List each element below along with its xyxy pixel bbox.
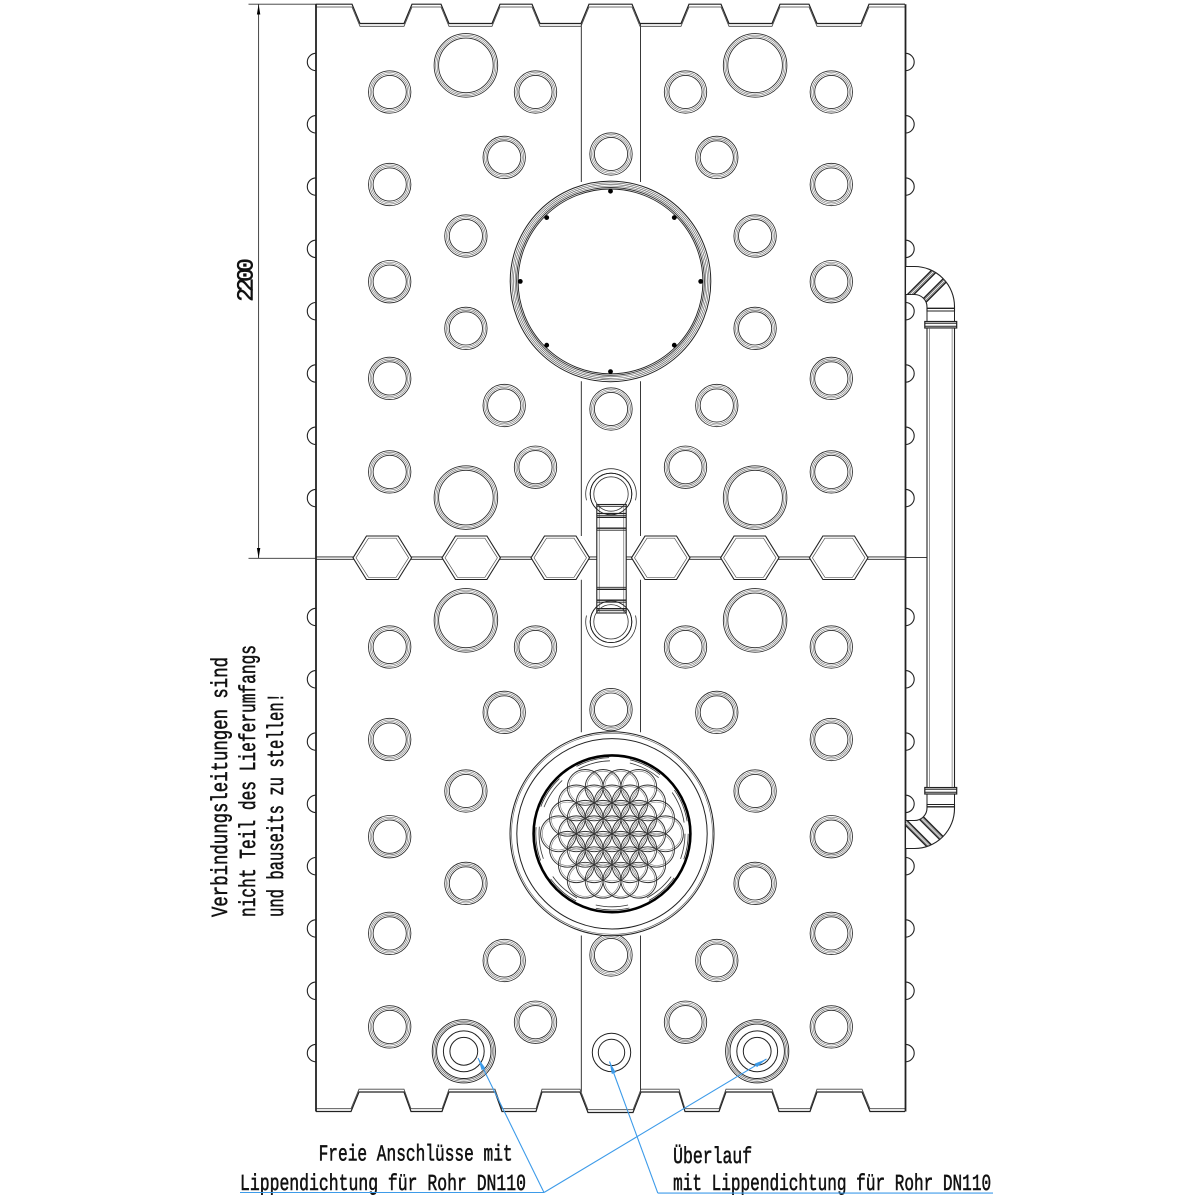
svg-text:nicht Teil des Lieferumfangs: nicht Teil des Lieferumfangs [236, 645, 262, 917]
svg-text:Freie Anschlüsse mit: Freie Anschlüsse mit [319, 1142, 513, 1168]
svg-text:Verbindungsleitungen sind: Verbindungsleitungen sind [208, 657, 234, 917]
svg-text:Lippendichtung für Rohr DN110: Lippendichtung für Rohr DN110 [240, 1171, 526, 1197]
svg-text:2200: 2200 [234, 259, 260, 302]
svg-text:und bauseits zu stellen!: und bauseits zu stellen! [264, 693, 290, 917]
svg-text:Überlauf: Überlauf [673, 1144, 752, 1170]
